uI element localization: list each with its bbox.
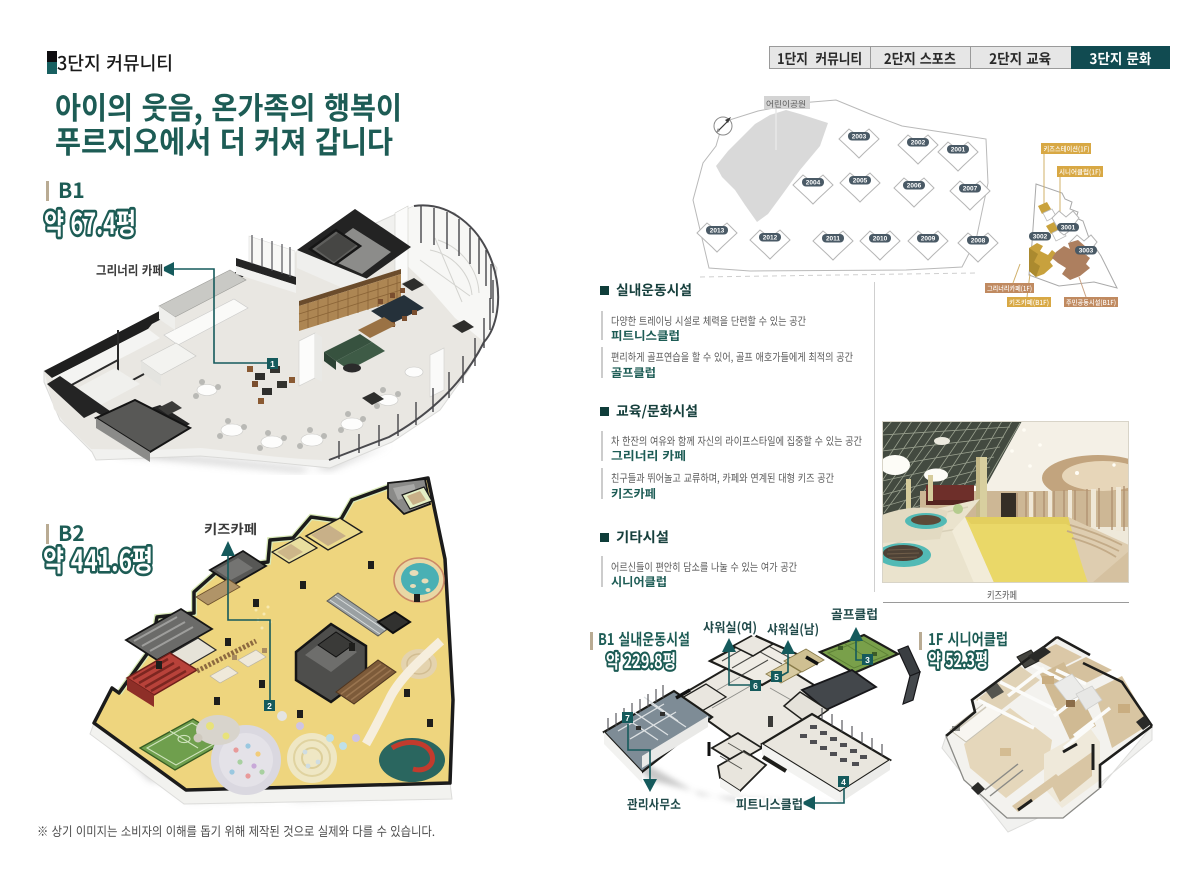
svg-text:3002: 3002: [1033, 234, 1048, 241]
svg-text:2007: 2007: [963, 186, 978, 193]
svg-text:2009: 2009: [921, 236, 936, 243]
svg-text:2013: 2013: [710, 228, 725, 235]
svg-text:2002: 2002: [911, 140, 926, 147]
svg-text:2: 2: [267, 701, 272, 711]
svg-text:2008: 2008: [971, 238, 986, 245]
svg-text:2012: 2012: [763, 235, 778, 242]
svg-text:5: 5: [774, 672, 779, 682]
svg-text:2003: 2003: [852, 134, 867, 141]
svg-text:2001: 2001: [951, 147, 966, 154]
svg-text:3001: 3001: [1061, 225, 1076, 232]
svg-text:2006: 2006: [907, 183, 922, 190]
svg-text:6: 6: [753, 681, 758, 691]
svg-text:2010: 2010: [873, 236, 888, 243]
svg-text:2011: 2011: [826, 236, 840, 243]
svg-text:7: 7: [625, 713, 630, 723]
svg-text:3003: 3003: [1079, 248, 1094, 255]
svg-text:2005: 2005: [853, 178, 868, 185]
svg-text:1: 1: [270, 359, 275, 369]
svg-text:2004: 2004: [806, 180, 821, 187]
svg-text:3: 3: [865, 655, 870, 665]
svg-text:4: 4: [841, 777, 846, 787]
